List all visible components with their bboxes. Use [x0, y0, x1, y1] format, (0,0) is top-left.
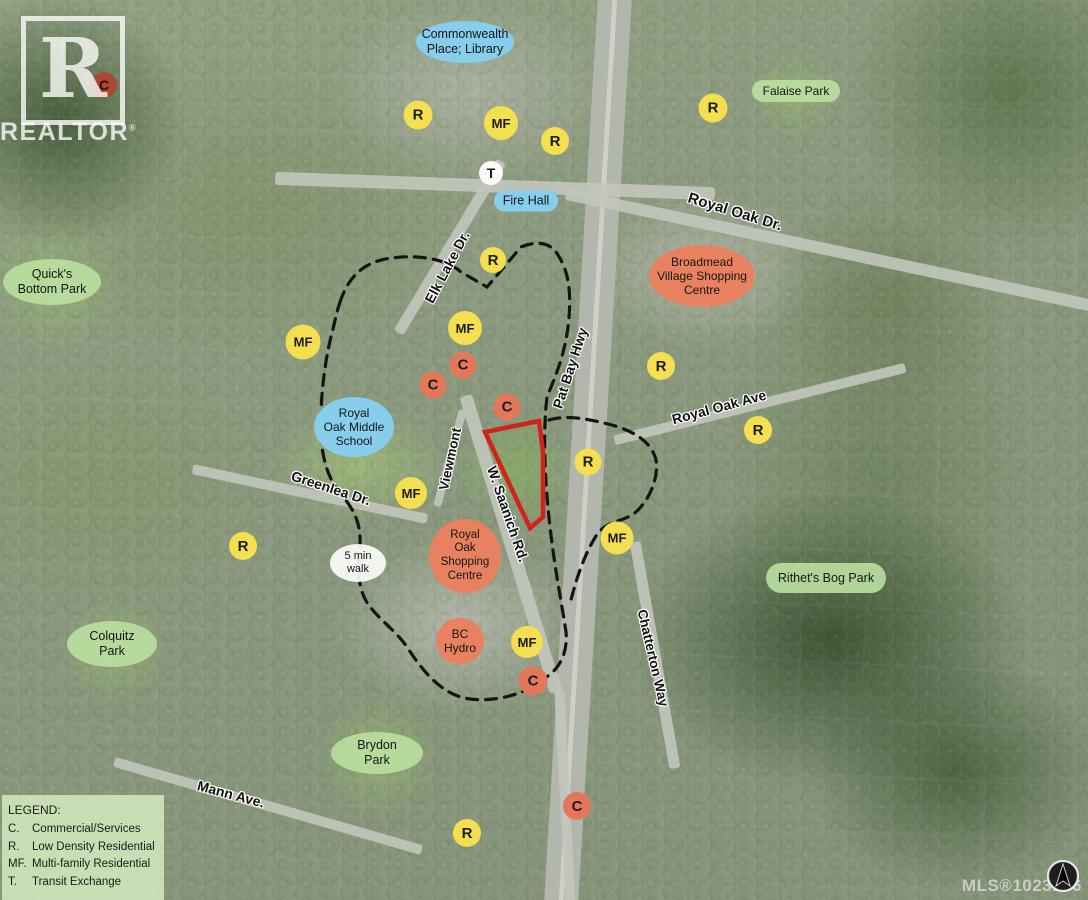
legend: LEGEND: C.Commercial/ServicesR.Low Densi… — [2, 795, 164, 900]
legend-title: LEGEND: — [8, 801, 158, 820]
place-label-line: Hydro — [444, 641, 476, 655]
marker-c: C — [519, 667, 548, 696]
place-label-five-min-walk: 5 minwalk — [330, 544, 386, 582]
place-label-fire-hall: Fire Hall — [494, 191, 558, 212]
place-label-line: Broadmead — [671, 255, 733, 269]
place-label-line: Quick's — [32, 267, 73, 282]
place-label-line: Oak Middle — [324, 420, 385, 434]
legend-key: C. — [8, 821, 32, 839]
marker-r: R — [647, 352, 675, 380]
legend-row: C.Commercial/Services — [8, 821, 158, 839]
legend-key: MF. — [8, 856, 32, 874]
realtor-logo: R REALTOR® — [0, 0, 150, 150]
place-label-royal-oak-shopping-centre: RoyalOakShoppingCentre — [429, 519, 501, 593]
legend-label: Commercial/Services — [32, 821, 141, 839]
marker-c: C — [420, 372, 447, 399]
legend-key: T. — [8, 874, 32, 892]
registered-trademark-icon: ® — [129, 123, 137, 133]
legend-key: R. — [8, 839, 32, 857]
place-label-colquitz-park: ColquitzPark — [67, 621, 157, 667]
legend-label: Low Density Residential — [32, 839, 155, 857]
realtor-logo-frame: R — [21, 16, 125, 125]
legend-label: Transit Exchange — [32, 874, 121, 892]
marker-mf: MF — [395, 477, 427, 509]
place-label-line: Falaise Park — [763, 84, 830, 98]
place-label-quicks-bottom-park: Quick'sBottom Park — [3, 259, 101, 305]
place-label-line: Brydon — [357, 738, 397, 753]
place-label-line: Commonwealth — [422, 27, 509, 42]
legend-row: T.Transit Exchange — [8, 874, 158, 892]
marker-r: R — [699, 94, 728, 123]
marker-t: T — [479, 161, 503, 185]
place-label-commonwealth-place-library: CommonwealthPlace; Library — [416, 21, 514, 63]
north-arrow-icon — [1047, 860, 1079, 892]
place-label-rithets-bog-park: Rithet's Bog Park — [766, 563, 886, 593]
legend-row: R.Low Density Residential — [8, 839, 158, 857]
place-label-line: walk — [347, 563, 369, 576]
legend-rows: C.Commercial/ServicesR.Low Density Resid… — [8, 821, 158, 892]
place-label-broadmead-village-shopping-centre: BroadmeadVillage ShoppingCentre — [649, 245, 755, 307]
place-label-line: Royal — [339, 406, 370, 420]
marker-c: C — [494, 394, 521, 421]
marker-mf: MF — [511, 626, 543, 658]
marker-r: R — [480, 247, 506, 273]
place-label-line: Centre — [448, 570, 483, 584]
legend-label: Multi-family Residential — [32, 856, 150, 874]
marker-r: R — [541, 127, 569, 155]
five-min-walk-boundary-lobe — [549, 417, 656, 600]
place-label-royal-oak-middle-school: RoyalOak MiddleSchool — [314, 397, 394, 457]
place-label-line: 5 min — [345, 550, 372, 563]
realtor-logo-letter: R — [39, 28, 107, 110]
marker-mf: MF — [601, 522, 634, 555]
marker-c: C — [450, 352, 477, 379]
place-label-brydon-park: BrydonPark — [331, 732, 423, 774]
aerial-map: Royal Oak Dr.Elk Lake Dr.Pat Bay HwyRoya… — [0, 0, 1088, 900]
place-label-line: Colquitz — [89, 629, 134, 644]
marker-c: C — [563, 792, 591, 820]
place-label-bc-hydro: BCHydro — [436, 618, 484, 664]
marker-r: R — [404, 101, 433, 130]
place-label-line: Fire Hall — [503, 194, 550, 209]
marker-r: R — [744, 416, 772, 444]
place-label-line: Village Shopping — [657, 269, 747, 283]
place-label-line: Park — [99, 644, 125, 659]
marker-r: R — [575, 449, 602, 476]
marker-mf: MF — [484, 106, 518, 140]
place-label-line: BC — [452, 627, 469, 641]
marker-r: R — [453, 819, 481, 847]
place-label-line: Place; Library — [427, 42, 503, 57]
place-label-line: School — [336, 434, 373, 448]
place-label-line: Royal — [450, 529, 479, 543]
place-label-line: Oak — [454, 542, 475, 556]
place-label-line: Bottom Park — [18, 282, 87, 297]
place-label-falaise-park: Falaise Park — [752, 80, 840, 102]
place-label-line: Rithet's Bog Park — [778, 571, 874, 586]
realtor-logo-word: REALTOR® — [0, 118, 150, 147]
place-label-line: Park — [364, 753, 390, 768]
marker-mf: MF — [286, 325, 321, 360]
marker-mf: MF — [448, 311, 482, 345]
legend-row: MF.Multi-family Residential — [8, 856, 158, 874]
marker-r: R — [229, 532, 257, 560]
place-label-line: Shopping — [441, 556, 490, 570]
place-label-line: Centre — [684, 283, 720, 297]
